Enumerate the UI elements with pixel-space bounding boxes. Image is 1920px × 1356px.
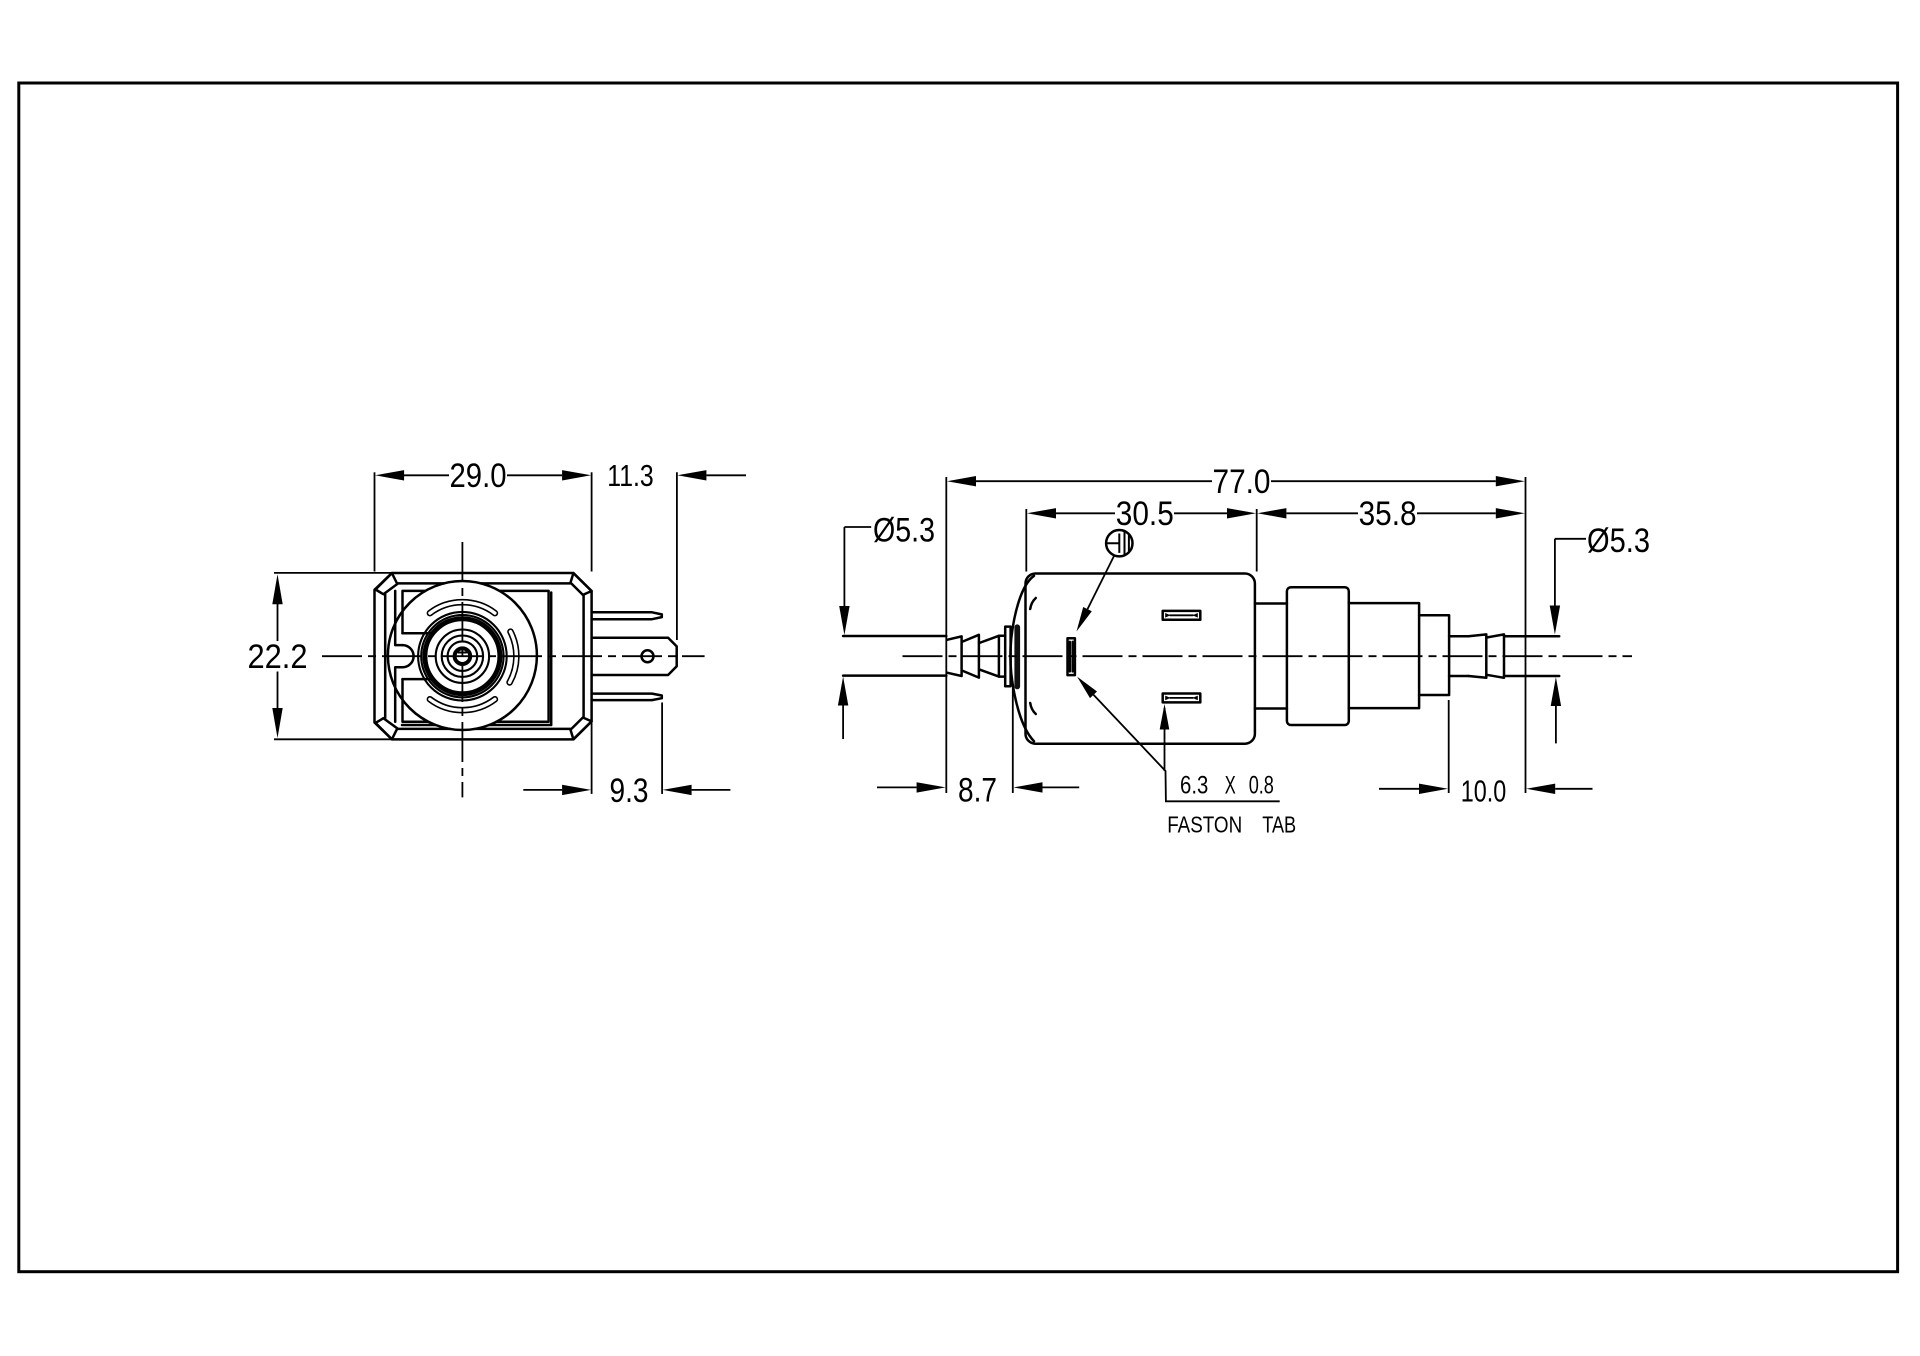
svg-text:FASTON: FASTON: [1167, 812, 1242, 838]
svg-text:Ø5.3: Ø5.3: [1587, 522, 1650, 560]
svg-text:11.3: 11.3: [607, 458, 654, 493]
svg-text:Ø5.3: Ø5.3: [873, 512, 935, 550]
svg-text:35.8: 35.8: [1359, 495, 1417, 533]
svg-text:8.7: 8.7: [958, 772, 997, 810]
svg-text:10.0: 10.0: [1461, 774, 1507, 809]
svg-text:0.8: 0.8: [1249, 772, 1274, 800]
svg-text:22.2: 22.2: [248, 638, 308, 676]
svg-text:X: X: [1225, 772, 1236, 800]
svg-text:29.0: 29.0: [450, 457, 507, 495]
svg-text:30.5: 30.5: [1116, 495, 1174, 533]
svg-text:TAB: TAB: [1262, 812, 1296, 838]
svg-text:6.3: 6.3: [1180, 772, 1208, 800]
svg-text:9.3: 9.3: [610, 772, 649, 810]
svg-text:77.0: 77.0: [1213, 463, 1271, 501]
